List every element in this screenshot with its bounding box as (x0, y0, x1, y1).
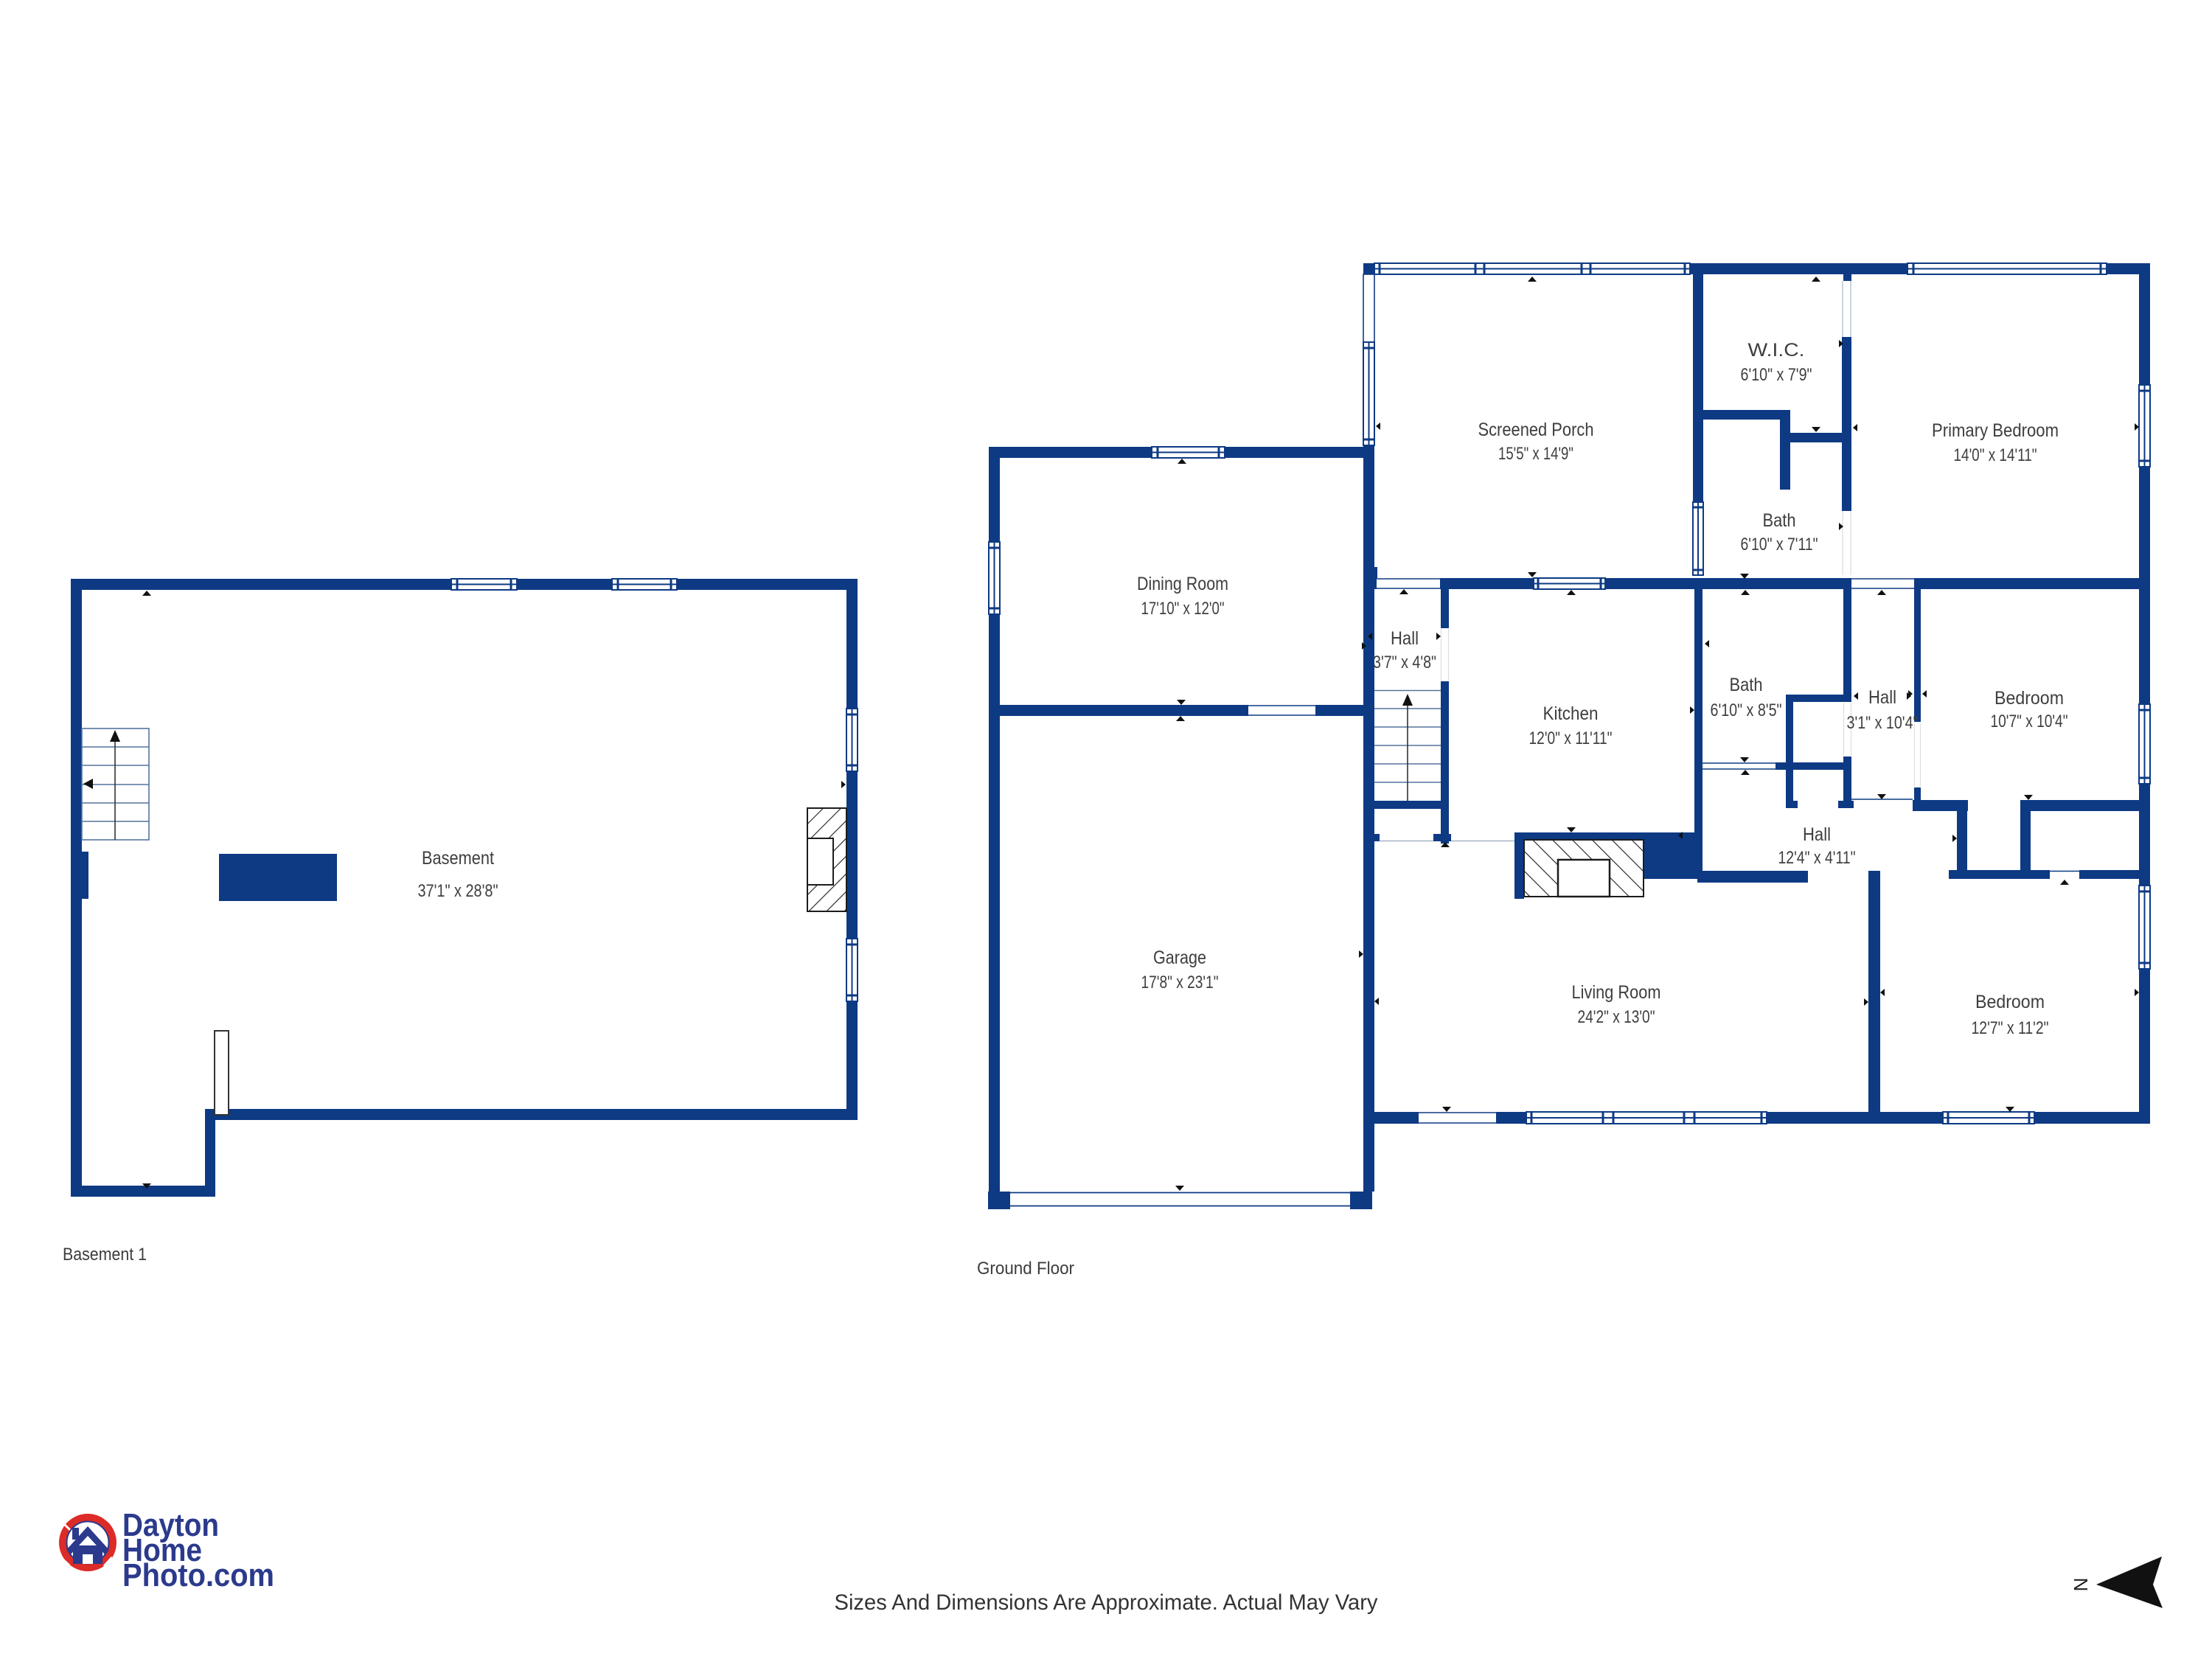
svg-text:37'1" x 28'8": 37'1" x 28'8" (418, 881, 498, 901)
svg-text:14'0" x 14'11": 14'0" x 14'11" (1954, 445, 2037, 465)
svg-text:Ground Floor: Ground Floor (977, 1259, 1074, 1279)
svg-text:Kitchen: Kitchen (1543, 703, 1599, 724)
svg-text:Primary Bedroom: Primary Bedroom (1932, 420, 2059, 441)
svg-text:Bedroom: Bedroom (1994, 688, 2064, 709)
svg-text:Photo.com: Photo.com (122, 1557, 274, 1593)
svg-text:24'2" x 13'0": 24'2" x 13'0" (1578, 1007, 1655, 1027)
svg-text:17'10" x 12'0": 17'10" x 12'0" (1141, 599, 1225, 619)
svg-text:Hall: Hall (1868, 687, 1896, 708)
svg-text:Bedroom: Bedroom (1975, 992, 2045, 1012)
svg-text:17'8" x 23'1": 17'8" x 23'1" (1141, 973, 1219, 992)
svg-text:3'7" x 4'8": 3'7" x 4'8" (1373, 653, 1436, 672)
svg-text:Dining Room: Dining Room (1137, 574, 1228, 594)
svg-text:W.I.C.: W.I.C. (1748, 340, 1805, 361)
svg-text:6'10" x 7'11": 6'10" x 7'11" (1741, 535, 1818, 554)
svg-text:Basement 1: Basement 1 (63, 1245, 147, 1265)
svg-text:Basement: Basement (422, 848, 494, 869)
svg-text:3'1" x 10'4": 3'1" x 10'4" (1847, 713, 1919, 733)
svg-text:Hall: Hall (1803, 824, 1831, 845)
svg-text:12'7" x 11'2": 12'7" x 11'2" (1972, 1018, 2049, 1038)
svg-text:12'0" x 11'11": 12'0" x 11'11" (1529, 728, 1613, 748)
svg-text:Screened Porch: Screened Porch (1478, 420, 1594, 440)
svg-text:15'5" x 14'9": 15'5" x 14'9" (1498, 444, 1573, 464)
svg-text:Living Room: Living Room (1572, 982, 1661, 1003)
svg-text:N: N (2070, 1578, 2092, 1592)
svg-text:Sizes And Dimensions Are Appro: Sizes And Dimensions Are Approximate. Ac… (835, 1590, 1378, 1615)
svg-text:Hall: Hall (1391, 628, 1419, 649)
svg-text:Bath: Bath (1730, 675, 1763, 695)
svg-text:10'7" x 10'4": 10'7" x 10'4" (1991, 712, 2068, 731)
svg-text:Bath: Bath (1763, 510, 1796, 531)
svg-text:6'10" x 7'9": 6'10" x 7'9" (1741, 365, 1812, 385)
svg-text:Garage: Garage (1153, 947, 1206, 968)
svg-text:6'10" x 8'5": 6'10" x 8'5" (1711, 700, 1782, 720)
svg-text:12'4" x 4'11": 12'4" x 4'11" (1778, 848, 1856, 868)
